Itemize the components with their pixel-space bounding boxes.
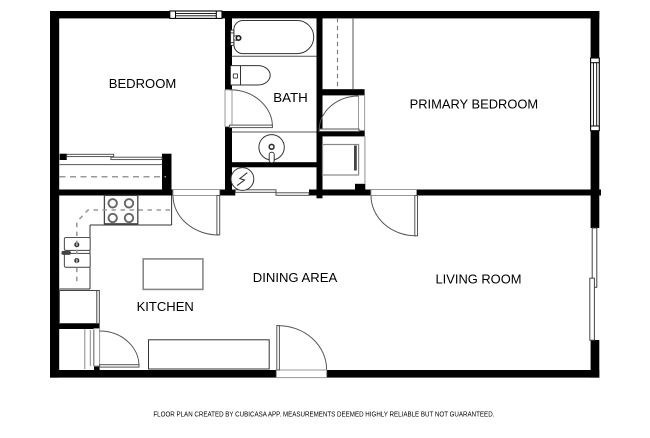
- svg-text:LIVING ROOM: LIVING ROOM: [436, 272, 522, 287]
- svg-text:KITCHEN: KITCHEN: [137, 299, 194, 314]
- svg-text:PRIMARY BEDROOM: PRIMARY BEDROOM: [410, 97, 539, 112]
- svg-text:BATH: BATH: [273, 90, 308, 105]
- svg-text:FLOOR PLAN CREATED BY CUBICASA: FLOOR PLAN CREATED BY CUBICASA APP. MEAS…: [153, 410, 494, 418]
- svg-text:DINING AREA: DINING AREA: [253, 270, 338, 285]
- svg-text:BEDROOM: BEDROOM: [109, 76, 177, 91]
